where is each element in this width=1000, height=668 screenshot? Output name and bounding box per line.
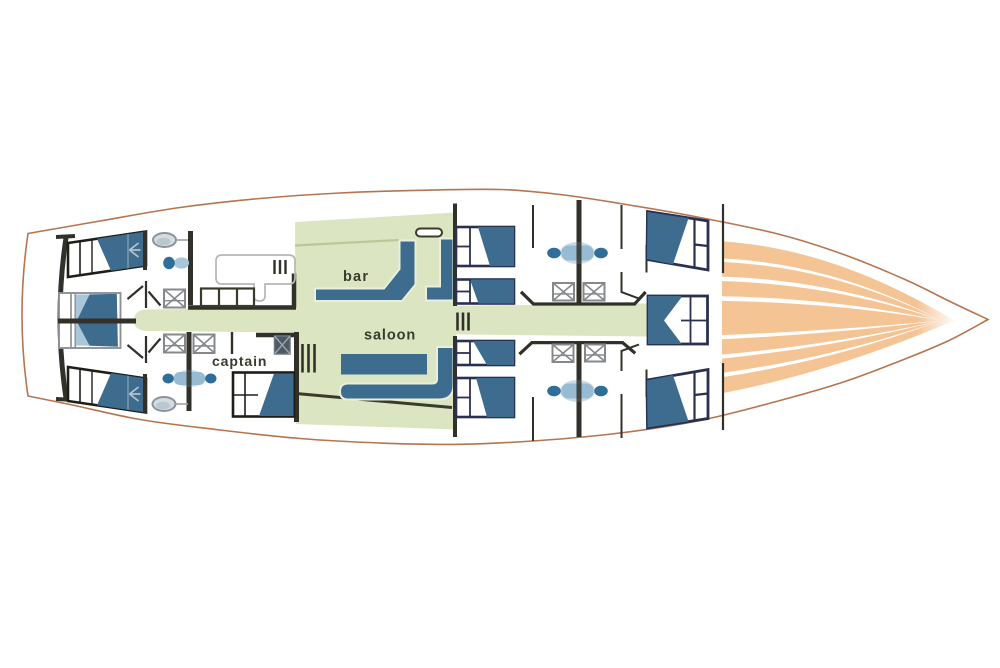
svg-text:bar: bar — [343, 269, 369, 285]
svg-text:captain: captain — [212, 353, 267, 369]
svg-text:saloon: saloon — [364, 328, 416, 344]
